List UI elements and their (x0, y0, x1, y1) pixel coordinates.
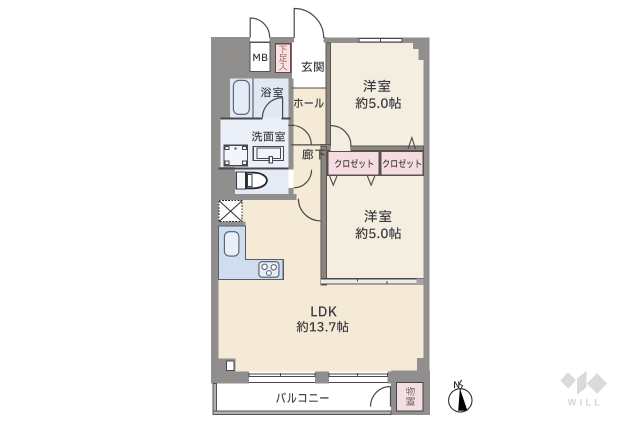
svg-text:WILL: WILL (568, 397, 604, 407)
